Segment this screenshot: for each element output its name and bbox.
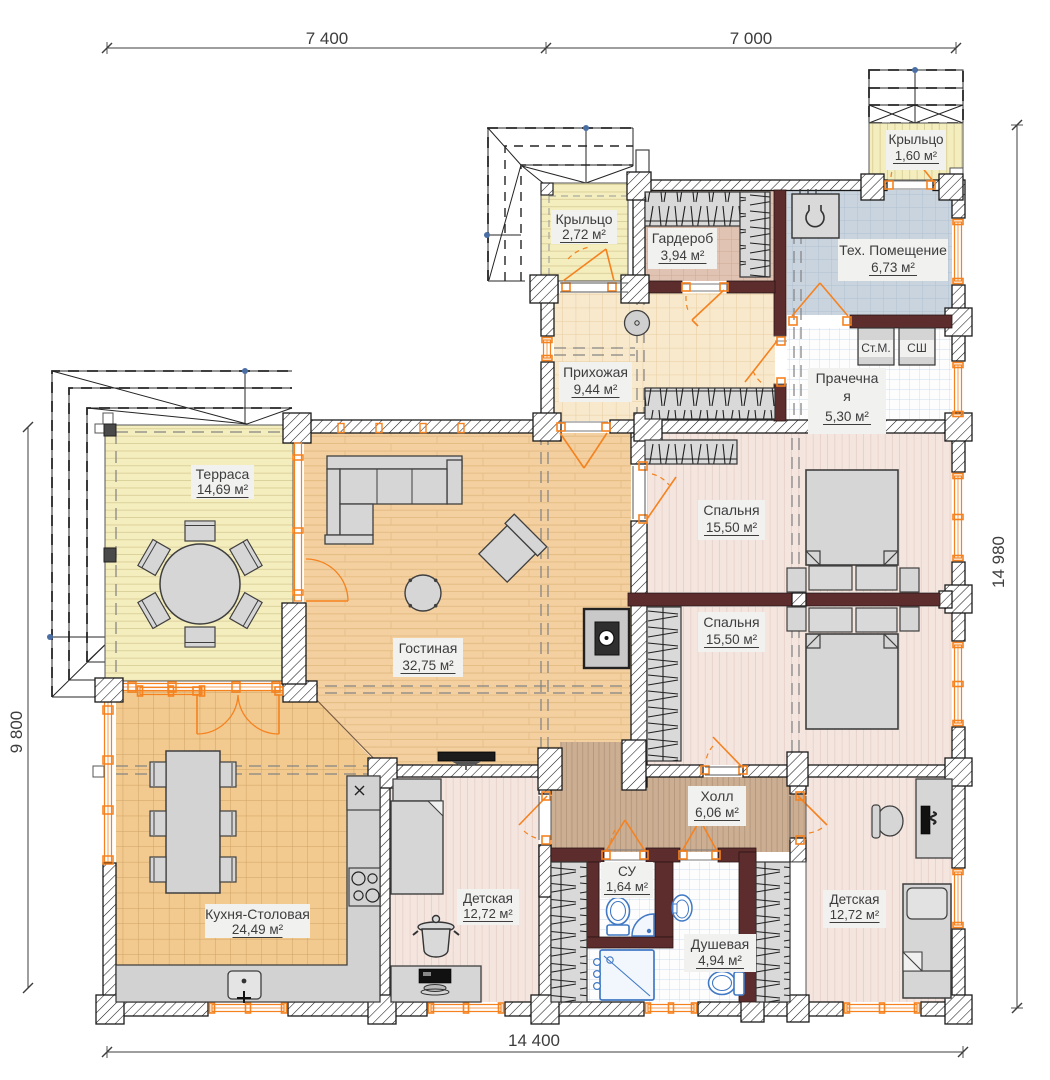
svg-text:9 800: 9 800 — [7, 711, 26, 754]
svg-text:Гардероб: Гардероб — [652, 230, 714, 246]
svg-text:3,94 м²: 3,94 м² — [661, 248, 705, 263]
svg-text:Кухня-Столовая: Кухня-Столовая — [205, 906, 310, 922]
svg-text:СУ: СУ — [618, 864, 636, 879]
svg-text:6,06 м²: 6,06 м² — [695, 805, 739, 820]
svg-text:12,72 м²: 12,72 м² — [830, 907, 880, 922]
svg-text:Гостиная: Гостиная — [399, 640, 458, 656]
svg-text:Прачечна: Прачечна — [816, 370, 879, 386]
svg-text:7 400: 7 400 — [306, 29, 349, 48]
svg-text:Прихожая: Прихожая — [563, 364, 628, 380]
svg-text:14 980: 14 980 — [989, 536, 1008, 588]
svg-text:2,72 м²: 2,72 м² — [562, 227, 606, 242]
svg-text:Детская: Детская — [829, 892, 879, 907]
svg-text:СШ: СШ — [907, 341, 927, 355]
svg-text:я: я — [843, 388, 851, 404]
svg-text:1,64 м²: 1,64 м² — [606, 879, 649, 894]
svg-text:Ст.М.: Ст.М. — [861, 341, 891, 355]
svg-text:24,49 м²: 24,49 м² — [232, 922, 284, 937]
svg-text:Детская: Детская — [463, 891, 513, 906]
svg-text:15,50 м²: 15,50 м² — [706, 632, 758, 647]
svg-text:4,94 м²: 4,94 м² — [698, 953, 742, 968]
svg-text:1,60 м²: 1,60 м² — [895, 148, 938, 163]
svg-text:Душевая: Душевая — [691, 936, 749, 952]
svg-text:12,72 м²: 12,72 м² — [463, 906, 513, 921]
svg-text:Крыльцо: Крыльцо — [555, 211, 612, 227]
svg-text:Тех. Помещение: Тех. Помещение — [839, 242, 947, 258]
svg-text:9,44 м²: 9,44 м² — [574, 382, 618, 397]
svg-text:32,75 м²: 32,75 м² — [402, 658, 454, 673]
svg-text:7 000: 7 000 — [730, 29, 773, 48]
svg-text:Спальня: Спальня — [703, 614, 759, 630]
svg-text:14 400: 14 400 — [508, 1031, 560, 1050]
svg-text:Спальня: Спальня — [703, 502, 759, 518]
svg-text:5,30 м²: 5,30 м² — [825, 409, 869, 424]
svg-text:6,73 м²: 6,73 м² — [871, 260, 915, 275]
svg-text:15,50 м²: 15,50 м² — [706, 520, 758, 535]
svg-text:Крыльцо: Крыльцо — [888, 132, 943, 147]
svg-text:Терраса: Терраса — [196, 466, 250, 482]
svg-text:14,69 м²: 14,69 м² — [197, 482, 249, 497]
svg-text:Холл: Холл — [701, 788, 734, 804]
